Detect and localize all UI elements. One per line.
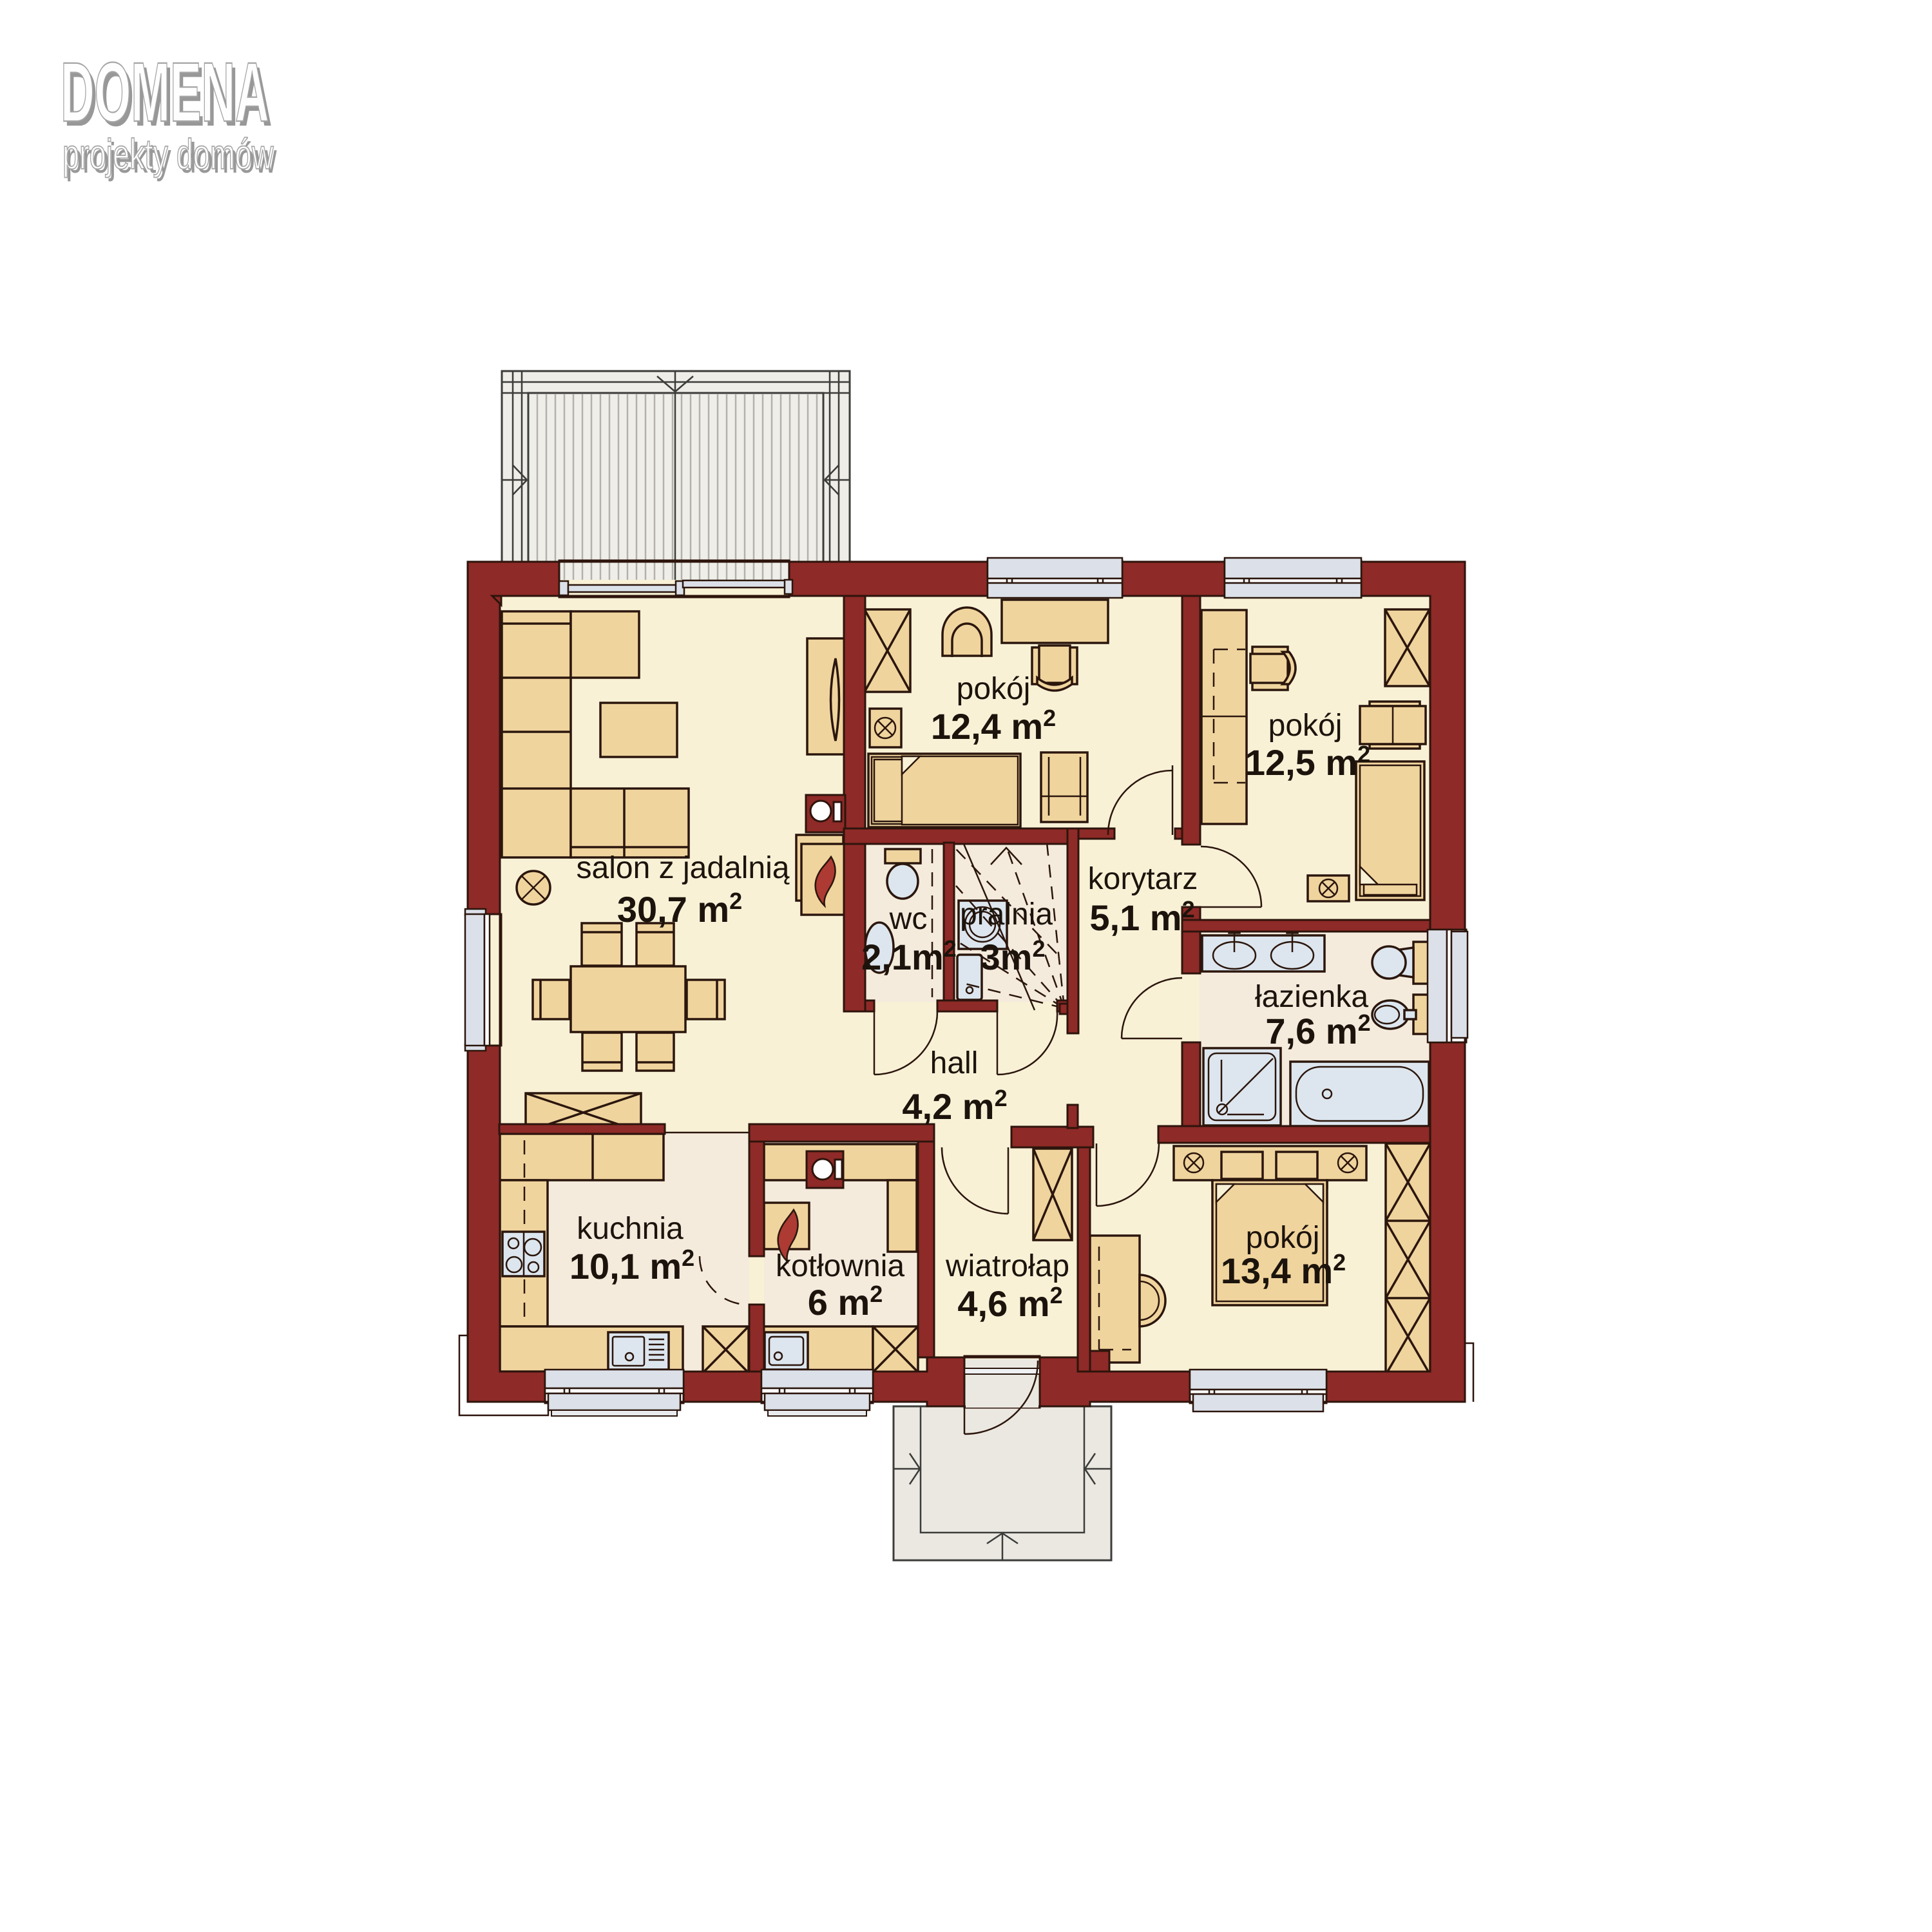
svg-text:pokój: pokój xyxy=(957,672,1031,706)
svg-text:12,5 m2: 12,5 m2 xyxy=(1245,741,1370,783)
svg-text:pralnia: pralnia xyxy=(960,897,1053,932)
svg-text:13,4 m2: 13,4 m2 xyxy=(1221,1249,1346,1291)
svg-text:wc: wc xyxy=(889,902,928,936)
svg-text:salon z jadalnią: salon z jadalnią xyxy=(577,851,790,885)
svg-text:łazienka: łazienka xyxy=(1255,980,1368,1014)
svg-text:projekty domów: projekty domów xyxy=(62,131,274,178)
svg-text:pokój: pokój xyxy=(1268,709,1343,743)
svg-text:5,1 m2: 5,1 m2 xyxy=(1089,896,1194,938)
svg-text:DOMENA: DOMENA xyxy=(61,46,269,140)
svg-text:wiatrołap: wiatrołap xyxy=(945,1249,1069,1283)
svg-text:kotłownia: kotłownia xyxy=(776,1249,904,1283)
svg-text:4,2 m2: 4,2 m2 xyxy=(902,1085,1007,1127)
svg-text:7,6 m2: 7,6 m2 xyxy=(1265,1009,1370,1051)
svg-text:kuchnia: kuchnia xyxy=(577,1212,684,1246)
svg-text:4,6 m2: 4,6 m2 xyxy=(957,1282,1062,1324)
svg-text:12,4 m2: 12,4 m2 xyxy=(931,705,1056,747)
svg-text:hall: hall xyxy=(930,1046,979,1080)
svg-text:10,1 m2: 10,1 m2 xyxy=(569,1245,694,1286)
svg-text:2,1m2: 2,1m2 xyxy=(861,935,957,977)
svg-text:korytarz: korytarz xyxy=(1088,862,1198,896)
svg-text:30,7 m2: 30,7 m2 xyxy=(617,888,742,930)
